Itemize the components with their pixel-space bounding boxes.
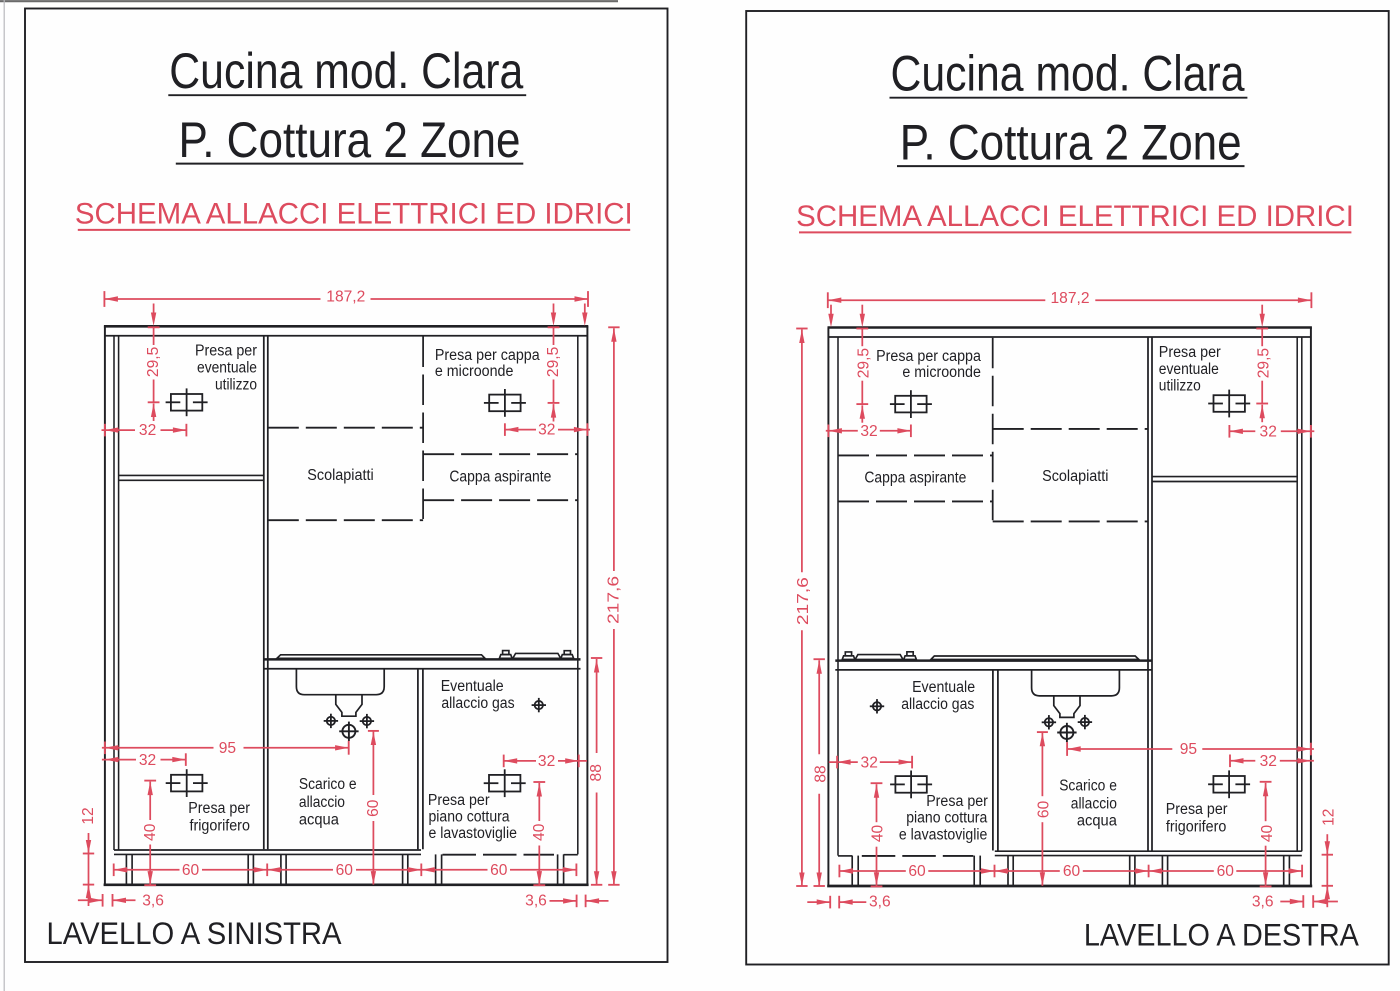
svg-text:allaccio: allaccio	[299, 794, 345, 811]
svg-text:SCHEMA ALLACCI ELETTRICI ED ID: SCHEMA ALLACCI ELETTRICI ED IDRICI	[75, 197, 633, 230]
svg-text:piano cottura: piano cottura	[429, 808, 511, 825]
svg-text:e lavastoviglie: e lavastoviglie	[429, 825, 517, 842]
svg-text:Presa per: Presa per	[1159, 344, 1221, 361]
svg-text:allaccio: allaccio	[1071, 795, 1117, 812]
svg-text:piano cottura: piano cottura	[906, 810, 988, 827]
svg-text:Presa per cappa: Presa per cappa	[435, 347, 540, 364]
svg-text:Cappa aspirante: Cappa aspirante	[449, 468, 551, 485]
svg-text:32: 32	[139, 752, 156, 769]
svg-text:SCHEMA ALLACCI ELETTRICI ED ID: SCHEMA ALLACCI ELETTRICI ED IDRICI	[796, 200, 1354, 233]
svg-text:Scarico e: Scarico e	[299, 776, 357, 793]
svg-text:acqua: acqua	[299, 812, 339, 829]
svg-text:frigorifero: frigorifero	[190, 818, 250, 835]
svg-text:LAVELLO A SINISTRA: LAVELLO A SINISTRA	[47, 915, 343, 951]
svg-text:32: 32	[1260, 753, 1277, 770]
svg-text:60: 60	[908, 863, 926, 880]
svg-text:Scolapiatti: Scolapiatti	[1042, 468, 1108, 485]
svg-text:frigorifero: frigorifero	[1166, 819, 1226, 836]
svg-text:187,2: 187,2	[326, 289, 365, 306]
svg-text:12: 12	[1321, 809, 1338, 826]
svg-text:Scarico e: Scarico e	[1059, 777, 1117, 794]
svg-text:40: 40	[531, 823, 548, 841]
svg-text:60: 60	[336, 862, 354, 879]
svg-text:29,5: 29,5	[145, 346, 162, 377]
svg-text:3,6: 3,6	[142, 893, 164, 910]
svg-text:Presa per: Presa per	[926, 793, 988, 810]
svg-text:217,6: 217,6	[795, 577, 812, 625]
svg-text:29,5: 29,5	[545, 346, 562, 377]
svg-text:P. Cottura 2 Zone: P. Cottura 2 Zone	[900, 115, 1242, 171]
svg-text:29,5: 29,5	[856, 348, 873, 379]
svg-text:40: 40	[1259, 825, 1276, 843]
svg-text:88: 88	[812, 765, 829, 782]
svg-text:3,6: 3,6	[1252, 894, 1274, 911]
svg-text:Cucina mod. Clara: Cucina mod. Clara	[169, 43, 523, 99]
svg-text:60: 60	[490, 862, 508, 879]
svg-text:Presa per: Presa per	[428, 792, 490, 809]
svg-text:eventuale: eventuale	[197, 360, 257, 377]
svg-text:e lavastoviglie: e lavastoviglie	[899, 826, 987, 843]
svg-text:32: 32	[538, 422, 555, 439]
svg-text:3,6: 3,6	[869, 894, 891, 911]
svg-text:32: 32	[139, 422, 156, 439]
svg-text:P. Cottura 2 Zone: P. Cottura 2 Zone	[179, 112, 521, 168]
svg-text:40: 40	[142, 823, 159, 841]
svg-text:60: 60	[365, 799, 382, 817]
svg-text:LAVELLO A DESTRA: LAVELLO A DESTRA	[1084, 916, 1360, 952]
svg-text:allaccio gas: allaccio gas	[441, 695, 515, 712]
svg-text:12: 12	[80, 807, 97, 824]
svg-text:60: 60	[182, 862, 200, 879]
svg-text:217,6: 217,6	[606, 576, 623, 624]
svg-text:acqua: acqua	[1077, 813, 1117, 830]
svg-text:32: 32	[538, 753, 555, 770]
svg-text:95: 95	[1180, 741, 1198, 758]
svg-text:95: 95	[219, 740, 237, 757]
svg-text:e microonde: e microonde	[902, 364, 981, 381]
svg-text:40: 40	[870, 825, 887, 843]
svg-text:Cappa aspirante: Cappa aspirante	[864, 470, 966, 487]
svg-text:Cucina mod. Clara: Cucina mod. Clara	[891, 46, 1245, 102]
svg-text:60: 60	[1063, 863, 1081, 880]
svg-text:Presa per: Presa per	[1166, 801, 1228, 818]
svg-text:60: 60	[1217, 863, 1235, 880]
svg-text:32: 32	[860, 423, 877, 440]
svg-text:utilizzo: utilizzo	[1159, 378, 1201, 395]
svg-text:Presa per cappa: Presa per cappa	[876, 348, 981, 365]
svg-text:eventuale: eventuale	[1159, 361, 1219, 378]
svg-text:Presa per: Presa per	[195, 343, 257, 360]
svg-text:Presa per: Presa per	[188, 800, 250, 817]
svg-text:88: 88	[588, 764, 605, 781]
svg-text:utilizzo: utilizzo	[215, 376, 257, 393]
svg-text:allaccio gas: allaccio gas	[901, 696, 975, 713]
svg-text:60: 60	[1036, 800, 1053, 818]
svg-text:Scolapiatti: Scolapiatti	[307, 467, 373, 484]
svg-text:e microonde: e microonde	[435, 363, 514, 380]
svg-text:Eventuale: Eventuale	[912, 679, 975, 696]
svg-text:32: 32	[1260, 423, 1277, 440]
svg-text:32: 32	[861, 754, 878, 771]
svg-text:29,5: 29,5	[1255, 348, 1272, 379]
svg-text:Eventuale: Eventuale	[441, 678, 504, 695]
svg-text:3,6: 3,6	[525, 892, 547, 909]
svg-text:187,2: 187,2	[1050, 290, 1089, 307]
